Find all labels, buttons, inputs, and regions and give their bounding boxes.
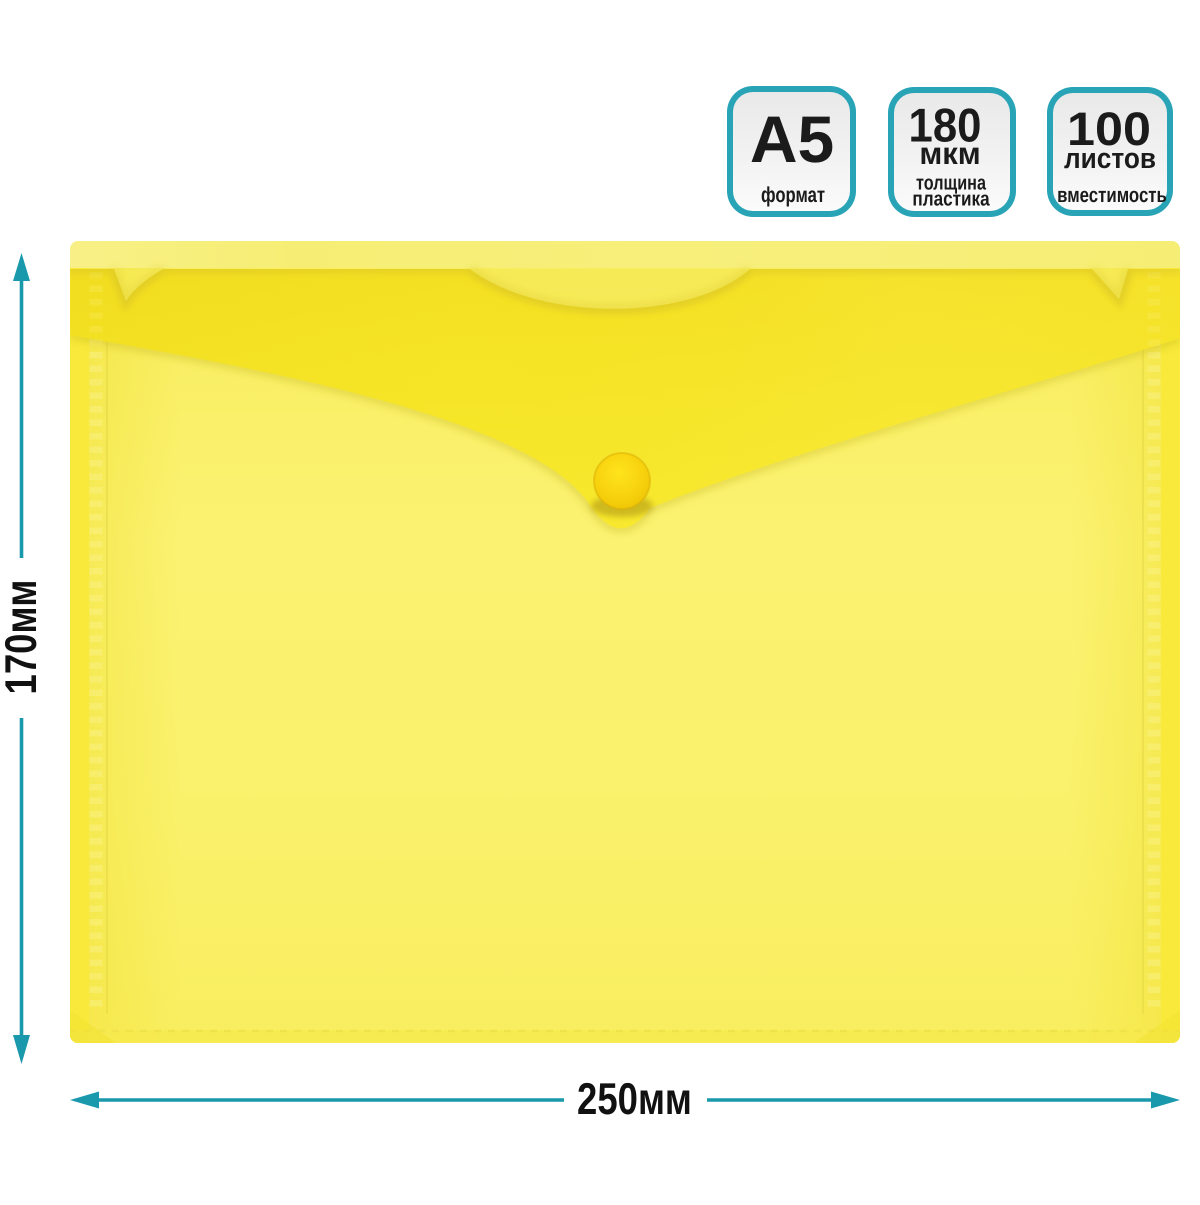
- svg-text:вместимость: вместимость: [1057, 184, 1167, 207]
- svg-text:250мм: 250мм: [577, 1075, 692, 1124]
- svg-text:пластика: пластика: [912, 188, 990, 211]
- svg-text:А5: А5: [750, 102, 834, 176]
- svg-text:170мм: 170мм: [0, 580, 46, 695]
- svg-text:формат: формат: [761, 183, 825, 207]
- svg-text:мкм: мкм: [919, 136, 980, 171]
- svg-text:листов: листов: [1064, 143, 1156, 175]
